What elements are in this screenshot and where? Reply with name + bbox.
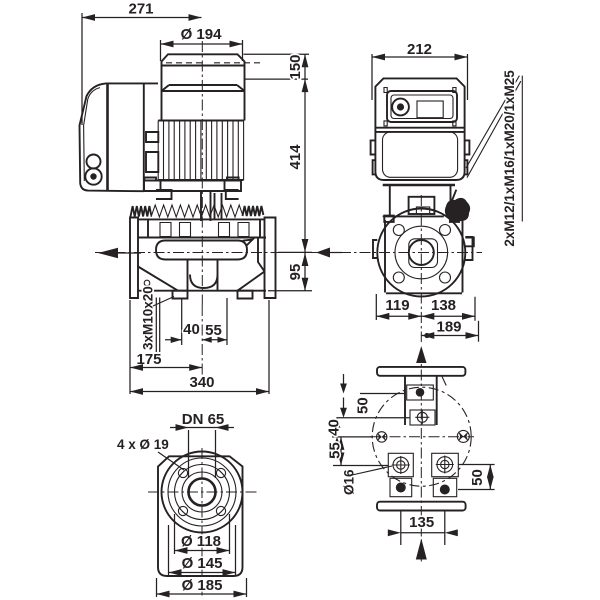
svg-text:135: 135 [409, 514, 434, 531]
svg-text:40: 40 [183, 321, 200, 338]
svg-text:271: 271 [128, 1, 153, 18]
svg-text:40: 40 [326, 419, 343, 436]
svg-text:340: 340 [189, 374, 214, 391]
svg-text:DN 65: DN 65 [182, 411, 225, 428]
svg-text:414: 414 [287, 144, 304, 170]
svg-text:4 x Ø 19: 4 x Ø 19 [117, 437, 169, 452]
svg-text:55: 55 [327, 442, 344, 459]
svg-text:Ø 145: Ø 145 [182, 555, 223, 572]
svg-text:50: 50 [355, 397, 372, 414]
svg-text:189: 189 [436, 319, 461, 336]
svg-text:55: 55 [205, 322, 222, 339]
svg-text:138: 138 [431, 297, 456, 314]
svg-text:95: 95 [287, 264, 304, 281]
svg-text:2xM12/1xM16/1xM20/1xM25: 2xM12/1xM16/1xM20/1xM25 [502, 70, 517, 247]
svg-text:50: 50 [469, 469, 486, 486]
svg-text:Ø 185: Ø 185 [182, 577, 223, 594]
svg-text:Ø16: Ø16 [342, 469, 357, 495]
svg-text:212: 212 [407, 41, 432, 58]
svg-text:Ø 194: Ø 194 [181, 26, 223, 43]
svg-text:150: 150 [287, 54, 304, 79]
svg-text:3xM10x20: 3xM10x20 [141, 286, 156, 350]
svg-text:119: 119 [385, 297, 409, 314]
